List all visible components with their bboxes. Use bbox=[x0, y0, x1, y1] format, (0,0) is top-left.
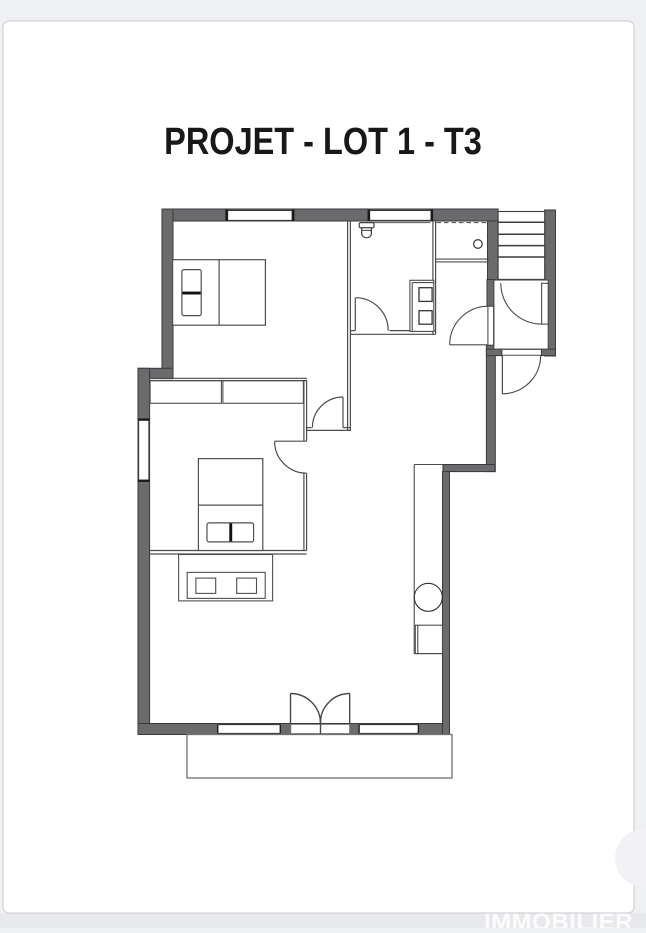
svg-text:IMMOBILIER: IMMOBILIER bbox=[484, 909, 633, 928]
svg-text:PROJET - LOT 1 - T3: PROJET - LOT 1 - T3 bbox=[164, 121, 482, 163]
